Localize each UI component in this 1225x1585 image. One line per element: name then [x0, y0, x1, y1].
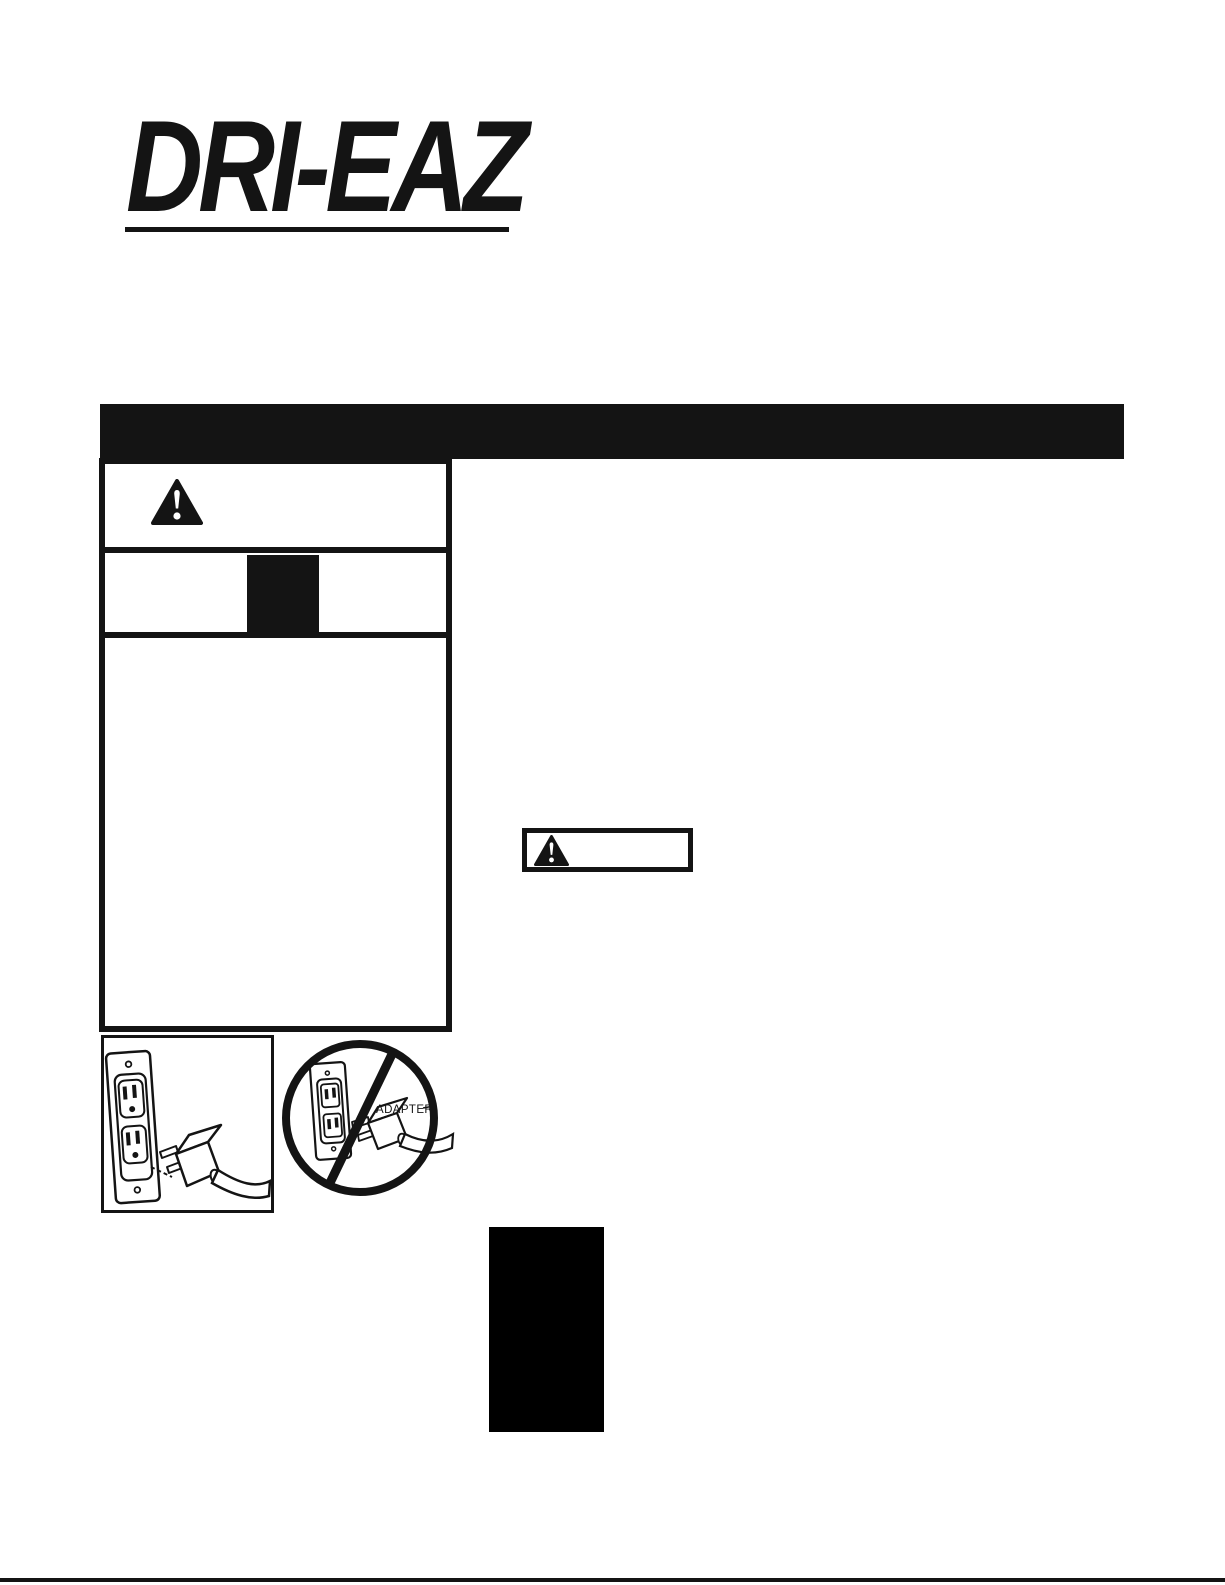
safety-panel: [99, 458, 452, 1032]
page-bottom-rule: [0, 1578, 1225, 1582]
adapter-prohibition-drawing: ADAPTER: [275, 1033, 461, 1205]
warning-triangle-icon: [533, 835, 570, 866]
power-cord: [212, 1170, 270, 1198]
logo-underline: [125, 227, 509, 232]
safety-panel-alert-row: [105, 464, 446, 553]
manual-page: DRI-EAZ: [0, 0, 1225, 1585]
black-symbol-block: [247, 555, 319, 632]
adapter-prohibition-figure: ADAPTER: [275, 1033, 461, 1205]
grounded-outlet-figure: [101, 1035, 274, 1213]
warning-banner: [522, 828, 693, 872]
safety-panel-symbol-row: [105, 553, 446, 638]
safety-panel-body: [105, 638, 446, 1026]
grounded-outlet-drawing: [104, 1038, 271, 1210]
adapter-label: ADAPTER: [376, 1104, 433, 1116]
section-header-bar: [100, 404, 1124, 459]
warning-triangle-icon: [151, 479, 203, 525]
wall-plate: [106, 1051, 160, 1204]
black-content-block: [489, 1227, 604, 1432]
brand-logo: DRI-EAZ: [126, 101, 524, 231]
